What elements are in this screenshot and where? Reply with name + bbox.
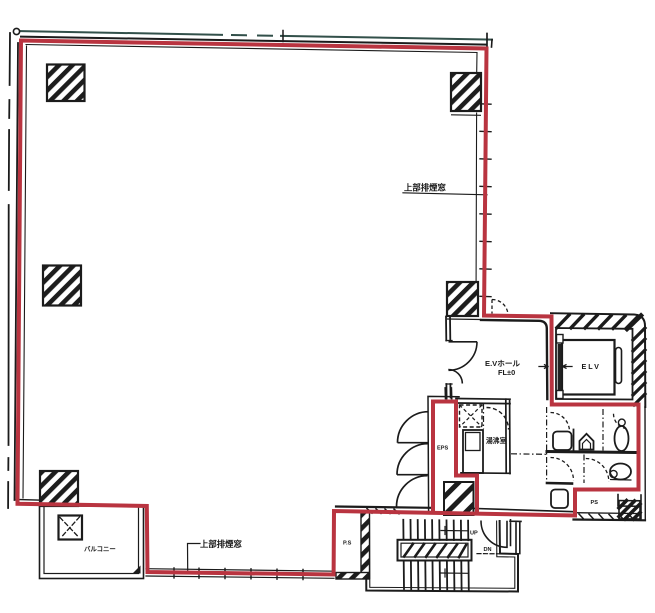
svg-text:バルコニー: バルコニー	[84, 545, 116, 553]
svg-text:上部排煙窓: 上部排煙窓	[200, 539, 242, 549]
svg-text:P.S: P.S	[343, 541, 352, 547]
svg-text:EPS: EPS	[437, 446, 448, 452]
svg-text:ELV: ELV	[582, 362, 601, 371]
svg-text:FL±0: FL±0	[498, 368, 515, 377]
svg-text:UP: UP	[470, 531, 478, 537]
svg-text:E.Vホール: E.Vホール	[485, 359, 520, 368]
svg-text:PS: PS	[591, 500, 599, 506]
svg-text:湯沸室: 湯沸室	[486, 436, 507, 445]
svg-text:DN: DN	[484, 547, 492, 553]
svg-text:上部排煙窓: 上部排煙窓	[404, 183, 446, 193]
